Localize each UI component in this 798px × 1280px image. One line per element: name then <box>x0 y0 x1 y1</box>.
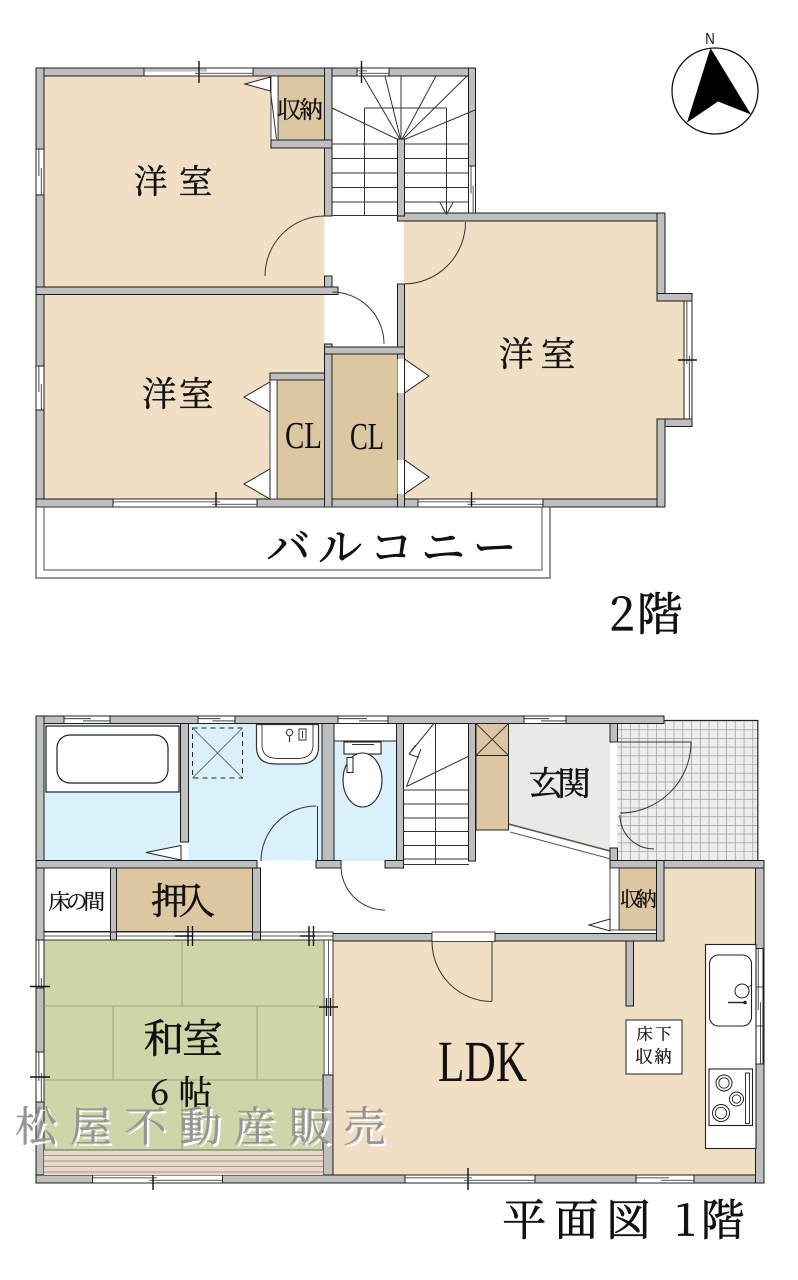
svg-text:N: N <box>705 31 715 48</box>
svg-text:CL: CL <box>350 416 384 458</box>
svg-text:LDK: LDK <box>438 1029 527 1094</box>
svg-text:CL: CL <box>285 415 322 457</box>
